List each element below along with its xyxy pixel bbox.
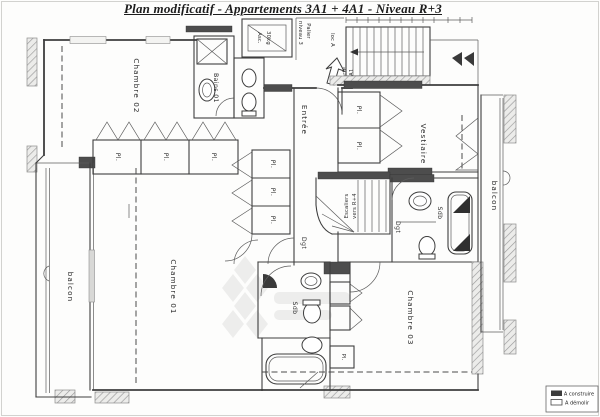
toilet-icon: [419, 237, 435, 256]
room-label-chambre-02: Chambre 02: [132, 58, 141, 113]
legend-label: A construire: [564, 392, 594, 398]
floorplan-page: Plan modificatif - Appartements 3A1 + 4A…: [0, 0, 600, 417]
new-wall: [324, 262, 350, 274]
room-label-entree: Entrée: [300, 105, 309, 135]
stairs-label-2: vers R+4: [352, 193, 358, 219]
closet-label: Pl.: [269, 160, 276, 169]
closet-label: Pl.: [114, 153, 121, 162]
sink-icon: [409, 192, 431, 210]
closet-column: Pl. Pl. Pl.: [232, 150, 290, 234]
sink-icon: [302, 337, 322, 353]
closet-label: Pl.: [269, 188, 276, 197]
legend-box: [546, 386, 598, 412]
sink-icon: [301, 273, 321, 289]
internal-stairs: Escaliers vers R+4: [316, 172, 390, 234]
door-leaf: [453, 196, 470, 213]
room-wc: [234, 58, 264, 118]
new-wall: [186, 26, 232, 32]
closet-row: Pl. Pl. Pl.: [93, 122, 238, 174]
corridor-dgt-right: Dgt: [394, 221, 401, 233]
room-label-dgt-left: Dgt: [300, 237, 307, 249]
legend: A construire A démolir: [546, 386, 598, 412]
room-vestiaire: Vestiaire Pl. Pl.: [338, 81, 478, 178]
landing-label-1: Palier: [305, 23, 311, 39]
local-a-label: loc A: [329, 33, 335, 47]
toilet-icon: [304, 303, 321, 323]
closet-label: Pl.: [355, 142, 362, 151]
elevator-capacity: 30kg: [265, 31, 271, 45]
toilet-icon: [242, 93, 256, 111]
toilet-tank: [303, 300, 320, 305]
landing-label-2: niveau 3: [297, 21, 303, 45]
closet-label: Pl.: [162, 153, 169, 162]
closet-label: Pl.: [355, 106, 362, 115]
stairs-direction-arrow: [350, 49, 358, 56]
railing-bump: [44, 266, 49, 281]
new-wall: [318, 172, 390, 179]
legend-swatch-outline: [551, 400, 562, 406]
balcony-left: balcon: [36, 163, 95, 397]
room-label-chambre-01: Chambre 01: [169, 259, 178, 314]
window: [89, 250, 95, 302]
room-label-bains-01: Bains 01: [212, 73, 219, 103]
room-chambre-03: Chambre 03: [262, 262, 483, 390]
room-chambre-02: Chambre 02: [36, 37, 196, 164]
door-leaf: [464, 52, 474, 66]
toilet-tank: [419, 254, 435, 259]
room-sdb-right: Sdb: [390, 175, 478, 263]
floorplan-drawing: balcon Chambre 02 Pl. Pl. Pl.: [0, 0, 600, 417]
door-leaf: [452, 52, 462, 66]
door-arc: [268, 238, 294, 264]
stairs-label-1: Escaliers: [344, 194, 350, 219]
door-leaf: [453, 234, 470, 251]
door-arc: [225, 234, 252, 261]
elevator-label: Asc.: [256, 32, 262, 44]
room-label-dgt-right: Dgt: [394, 221, 401, 233]
bidet-icon: [242, 69, 256, 87]
new-wall: [344, 81, 422, 89]
toilet-tank: [242, 111, 256, 116]
room-label-chambre-03: Chambre 03: [406, 290, 415, 345]
legend-swatch-filled: [551, 391, 562, 397]
room-label-balcon-right: balcon: [490, 181, 499, 211]
elevator: Asc. 30kg: [242, 19, 292, 57]
closet-label: Pl.: [340, 354, 346, 361]
closet-label: Pl.: [210, 153, 217, 162]
closet-label: Pl.: [269, 216, 276, 225]
new-wall: [264, 85, 292, 92]
room-label-vestiaire: Vestiaire: [419, 124, 428, 165]
legend-label: A démolir: [565, 400, 590, 407]
window: [70, 37, 106, 44]
railing-bump: [503, 171, 510, 185]
bathtub-icon: [266, 354, 326, 384]
window: [146, 37, 170, 44]
room-label-sdb-center: Sdb: [291, 302, 298, 315]
room-label-balcon-left: balcon: [66, 272, 75, 302]
room-label-sdb-right: Sdb: [436, 207, 443, 220]
room-bath-bottom: Pl.: [262, 337, 476, 390]
